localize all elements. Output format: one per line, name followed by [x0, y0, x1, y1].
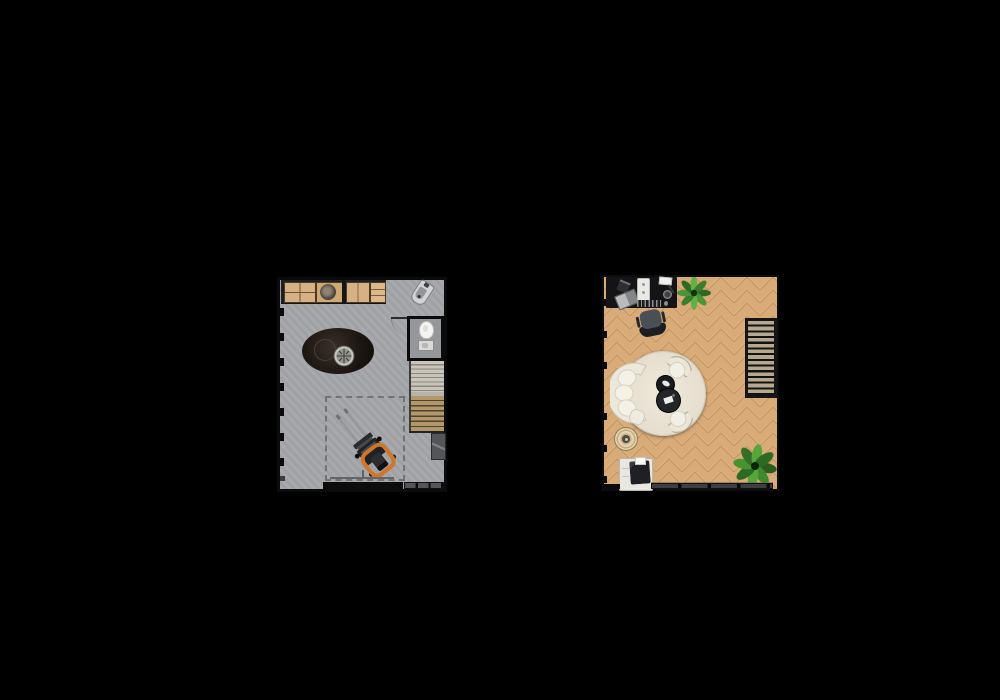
window-tick [279, 433, 284, 441]
window-tick [603, 445, 607, 452]
window-tick [279, 358, 284, 366]
printer-cabinet [619, 458, 653, 491]
workbench [281, 280, 386, 304]
floor-plan-garage [277, 277, 447, 492]
wall-stub [280, 476, 285, 481]
workbench-drawers [284, 282, 316, 303]
office-chair [634, 305, 668, 339]
rug-center-dot [625, 438, 628, 441]
staircase [409, 361, 444, 433]
sink-bowl [414, 286, 427, 300]
floor-mat [431, 433, 446, 460]
staircase [745, 318, 777, 398]
tower-button-icon [642, 283, 645, 286]
washbasin [418, 340, 434, 351]
faucet-icon [423, 282, 429, 288]
stair-lower-flight [411, 396, 444, 431]
door-marker [362, 470, 364, 478]
workbench-woodtop [346, 282, 370, 303]
stair-rail [409, 361, 411, 433]
toilet-seat [423, 325, 428, 332]
drawer-line [622, 468, 629, 469]
plant-top [677, 277, 711, 310]
workbench-side-drawers [370, 282, 386, 303]
printer-display [635, 457, 646, 465]
drain-grate-icon [333, 345, 355, 367]
desk [606, 277, 677, 308]
tabletop-item [661, 379, 670, 387]
window-tick [279, 458, 284, 466]
window-tick [279, 408, 284, 416]
window-tick [603, 362, 607, 369]
window-tick [279, 308, 284, 316]
grinder-icon [320, 284, 336, 300]
window-panes [405, 483, 443, 488]
coffee-table-large [657, 389, 680, 412]
toilet [419, 321, 434, 339]
washbasin-bowl [422, 343, 428, 348]
sofa [610, 356, 656, 430]
scene-background [0, 0, 1000, 700]
window-strip [404, 482, 444, 489]
toilet-room [407, 316, 444, 361]
stair-upper-flight [411, 361, 444, 392]
small-round-rug [614, 427, 638, 451]
desktop-tower [637, 278, 650, 302]
drawer-line [622, 476, 629, 477]
workbench-grinder-top [316, 282, 343, 303]
desk-lamp [663, 290, 672, 299]
garage-door [323, 482, 403, 489]
mouse-icon [664, 301, 668, 306]
window-tick [279, 333, 284, 341]
paper-tray-icon [659, 276, 673, 285]
window-tick [603, 476, 607, 483]
rug-center [622, 435, 630, 443]
stair-treads [748, 321, 774, 395]
window-panes [652, 484, 772, 488]
window-tick [279, 383, 284, 391]
bottom-window [651, 483, 773, 489]
tabletop-papers [663, 396, 673, 404]
floor-plan-studio [602, 275, 779, 491]
window-tick [603, 413, 607, 420]
tower-button-icon [642, 291, 645, 294]
tabletop-cup-icon [672, 394, 675, 397]
wall-chunk [604, 484, 620, 489]
window-tick [603, 331, 607, 338]
